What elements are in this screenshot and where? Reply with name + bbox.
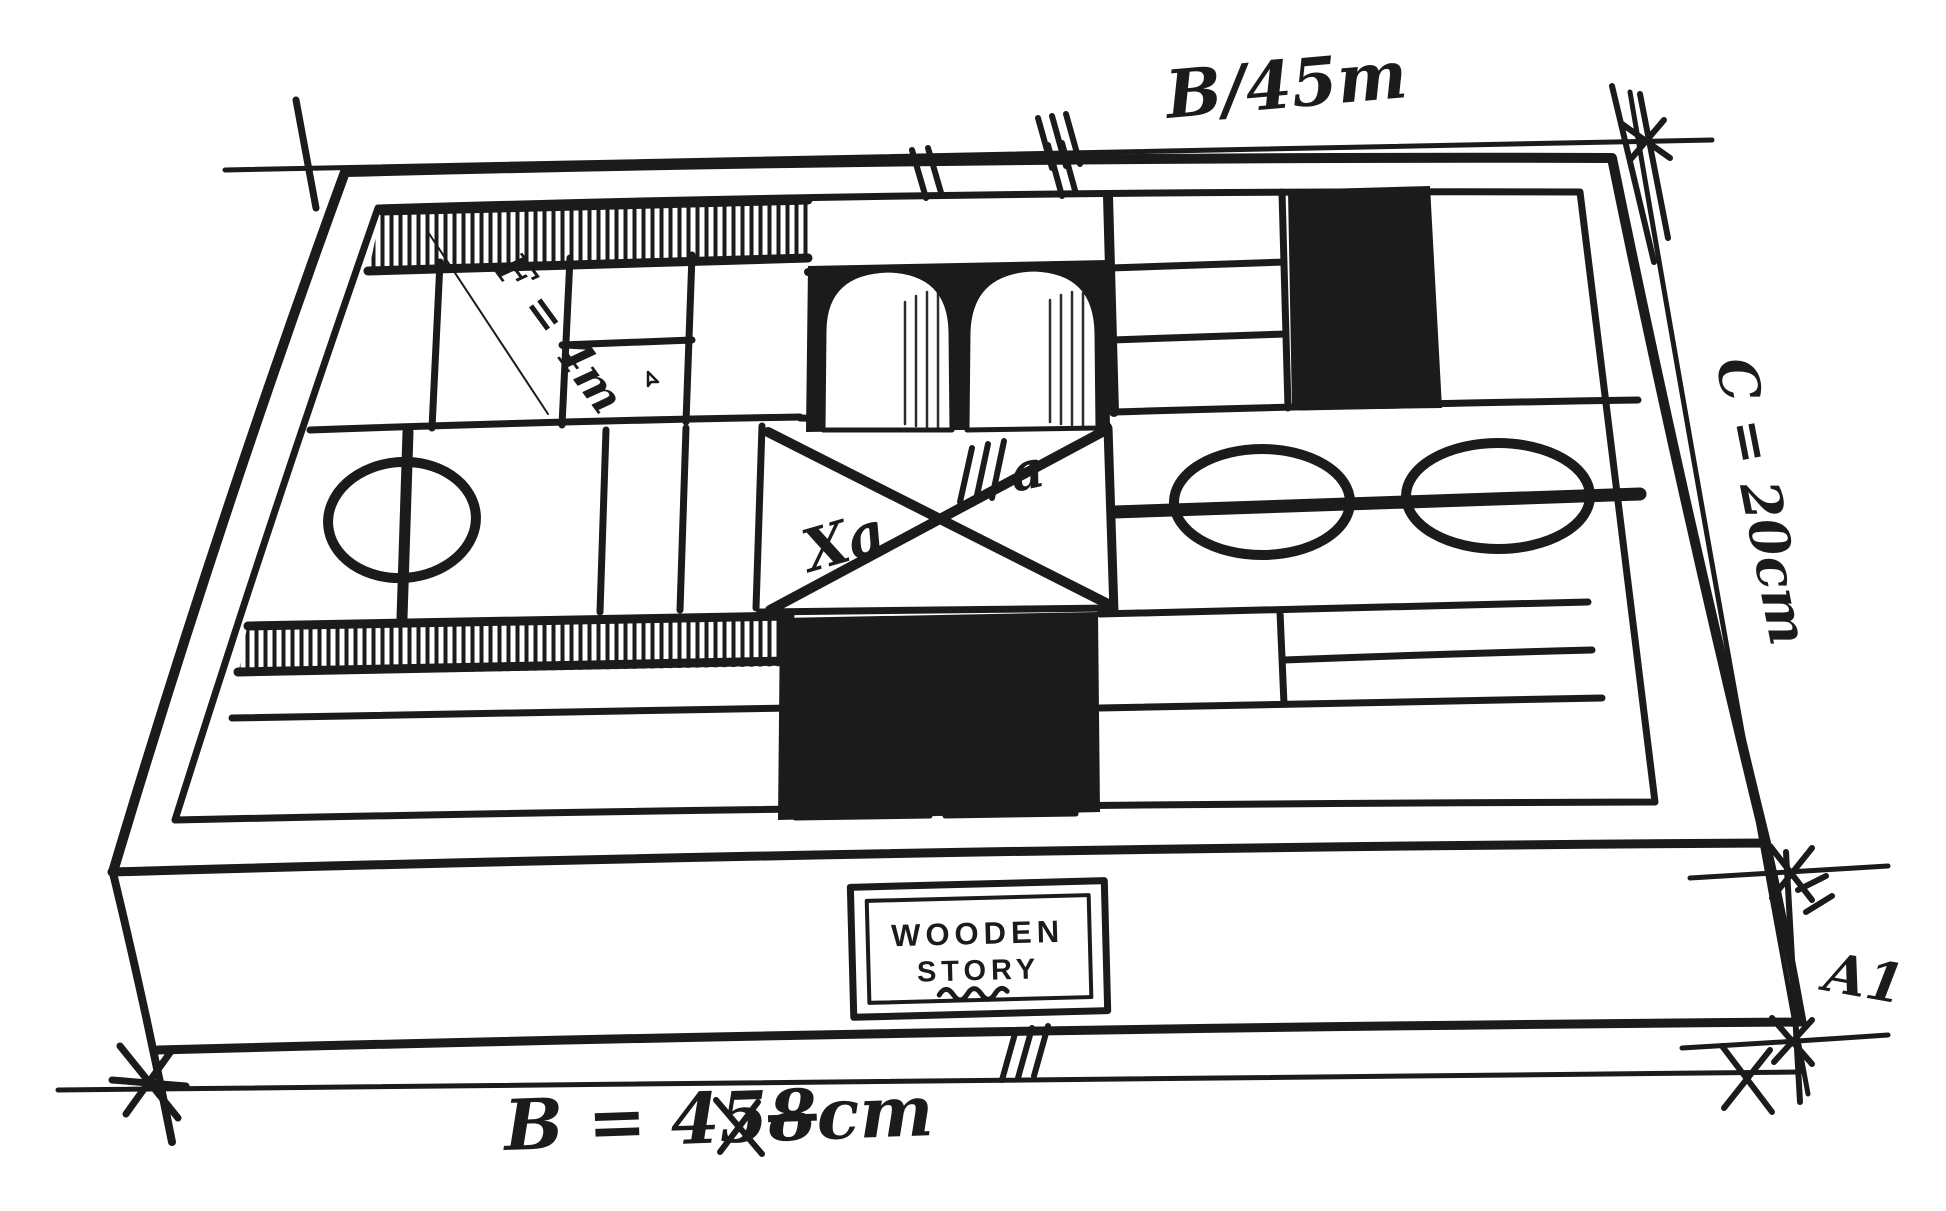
blocks-middle-left: [324, 426, 762, 618]
top-right-bottom-line: [1114, 400, 1638, 412]
bottom-dim-left-star: [112, 1046, 186, 1118]
bottom-width-struck: 8: [766, 1073, 819, 1158]
blocks-top-middle: [806, 260, 1110, 432]
blocks-bottom-left: [232, 612, 792, 718]
bottom-right-lines: [1100, 602, 1602, 708]
right-rod: [1114, 494, 1640, 512]
arch-block-2: [967, 269, 1098, 430]
bottom-width-suffix: cm: [815, 1069, 935, 1156]
top-dim-left-tick: [296, 100, 316, 208]
top-width-label: B/45m: [1161, 35, 1410, 134]
blocks-bottom-right: [1100, 602, 1602, 708]
brand-line-2: STORY: [917, 953, 1041, 988]
top-right-left-edge: [1108, 196, 1114, 412]
bottom-dim-right-cross: [1722, 1046, 1772, 1112]
bottom-width-prefix: B = 45: [501, 1075, 770, 1167]
middle-left-dividers: [600, 426, 762, 612]
center-tally-label: a: [1004, 438, 1050, 505]
arch-block-1: [823, 270, 952, 430]
arch-column-backdrop: [1288, 186, 1442, 410]
x-square-right-edge: [1108, 428, 1114, 612]
height-dimension: A1: [1682, 846, 1909, 1102]
blocks-middle-right: [1114, 443, 1640, 555]
center-x-square: Xa a: [760, 418, 1114, 612]
sketch-page: Xa a: [0, 0, 1946, 1211]
center-xa-label: Xa: [791, 497, 893, 586]
sketch-canvas: Xa a: [0, 0, 1946, 1211]
top-right-cell-lines: [1110, 192, 1288, 408]
brand-plate: WOODEN STORY: [850, 881, 1107, 1018]
bottom-left-plank-line: [232, 708, 792, 718]
stray-arrow-mark: [648, 372, 658, 386]
blocks-bottom-middle: [778, 612, 1100, 820]
brand-line-1: WOODEN: [891, 914, 1065, 954]
height-label: A1: [1815, 939, 1909, 1017]
arch-backdrop-bottom: [778, 612, 1100, 820]
top-dim-right-star: [1612, 86, 1670, 262]
blocks-top-right: [1108, 186, 1638, 412]
